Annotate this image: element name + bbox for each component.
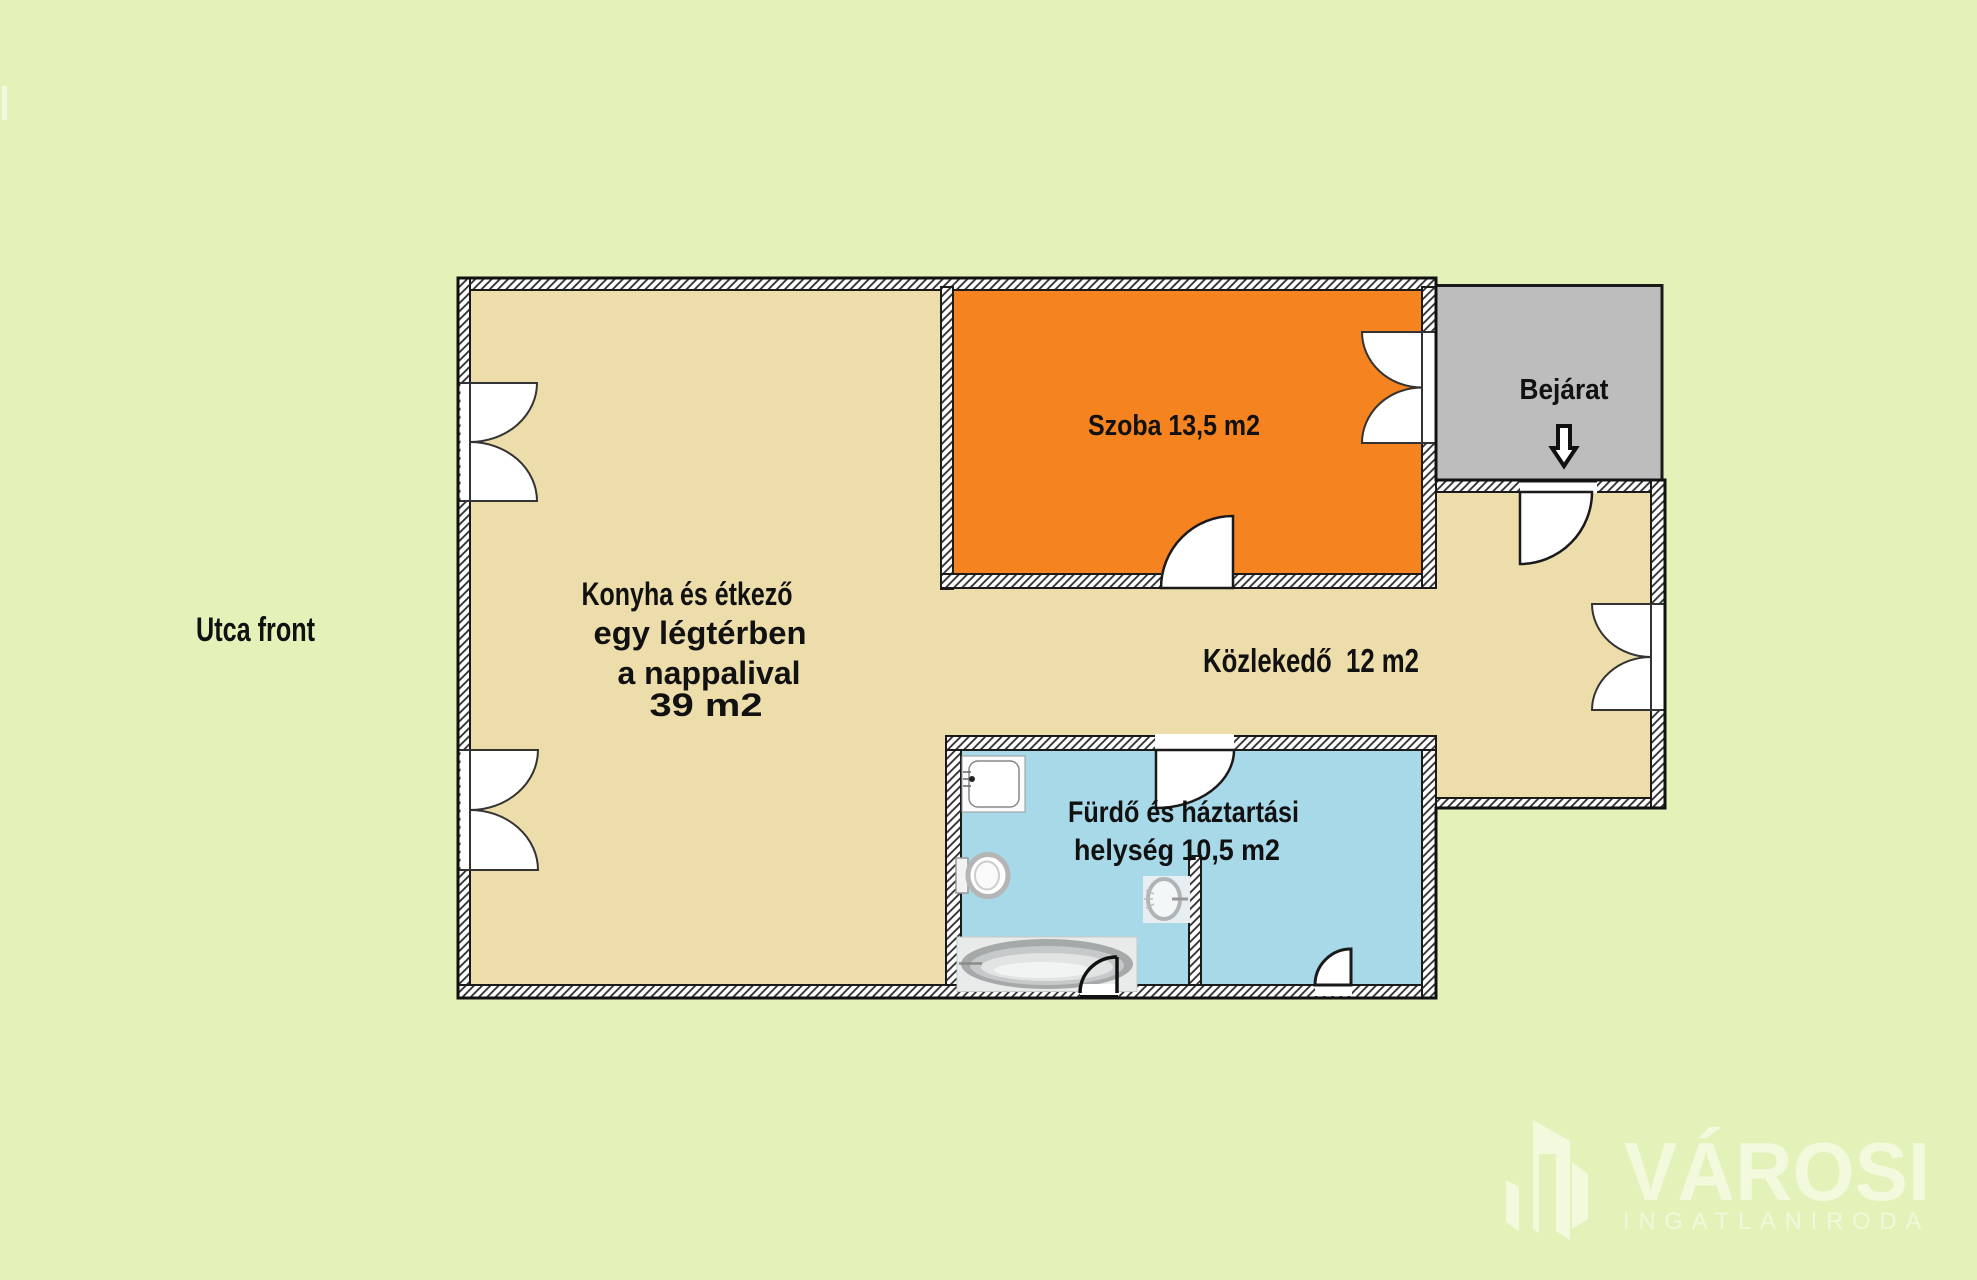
svg-text:egy légtérben: egy légtérben [594, 615, 807, 651]
svg-text:Szoba 13,5 m2: Szoba 13,5 m2 [1088, 410, 1260, 442]
svg-text:Fürdő és háztartási: Fürdő és háztartási [1068, 796, 1299, 829]
svg-text:Közlekedő 12 m2: Közlekedő 12 m2 [1203, 642, 1419, 679]
svg-text:helység 10,5 m2: helység 10,5 m2 [1074, 834, 1280, 867]
svg-text:39 m2: 39 m2 [650, 687, 763, 723]
svg-text:Konyha és étkező: Konyha és étkező [582, 576, 793, 612]
svg-text:Bejárat: Bejárat [1520, 374, 1609, 406]
svg-text:INGATLANIRODA: INGATLANIRODA [1623, 1208, 1930, 1235]
svg-text:Utca front: Utca front [196, 611, 315, 649]
svg-text:VÁROSI: VÁROSI [1624, 1125, 1930, 1218]
svg-text:a nappalival: a nappalival [618, 655, 801, 691]
